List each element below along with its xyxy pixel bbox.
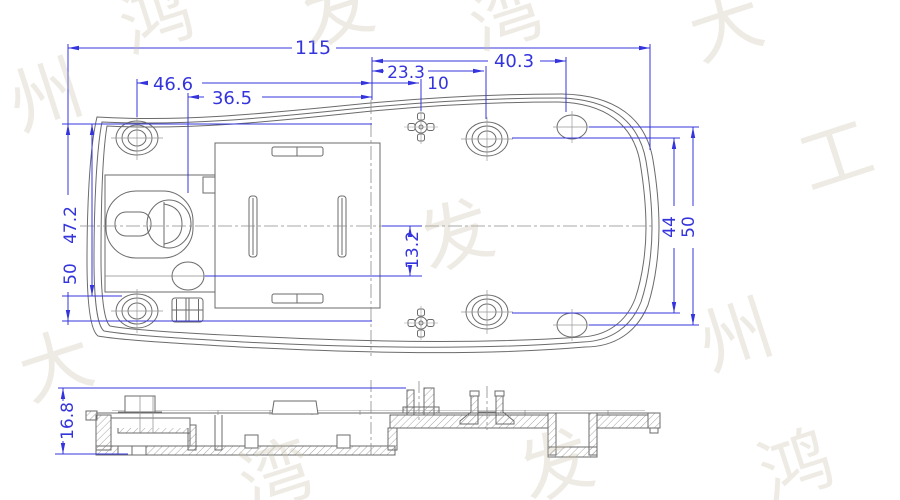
keyhole-feature xyxy=(106,191,193,258)
dim-boss-offset: 10 xyxy=(427,74,449,94)
section-raised-blocks xyxy=(125,396,318,414)
arrowheads xyxy=(61,46,695,454)
top-view xyxy=(80,94,659,356)
dim-center-hole-offset: 23.3 xyxy=(387,63,425,83)
mount-hole-bottom-right xyxy=(461,290,513,334)
dim-keyhole-offset: 36.5 xyxy=(212,88,252,109)
latch-grid xyxy=(172,298,203,322)
dim-left-span: 50 xyxy=(61,263,81,285)
clover-boss-bottom xyxy=(404,306,438,340)
dim-left-inner-span: 47.2 xyxy=(61,206,81,244)
body-outline xyxy=(87,94,659,353)
mount-hole-top-right xyxy=(461,117,513,161)
dimensions: 115 40.3 23.3 10 46.6 36.5 13.2 44 50 47… xyxy=(55,37,699,454)
cad-drawing-canvas: 鸿 发 湾 大 工 州 鸿 发 湾 大 州 发 xyxy=(0,0,900,500)
clover-boss-top xyxy=(404,110,438,144)
dim-right-span: 50 xyxy=(679,216,699,238)
dim-hole-row-span: 44 xyxy=(660,216,680,238)
dim-left-hole-offset: 46.6 xyxy=(153,74,193,95)
left-plate xyxy=(105,175,215,292)
oval-hole-bottom xyxy=(553,309,591,341)
interior-plates xyxy=(105,143,380,308)
cover-notch xyxy=(203,177,215,193)
cover-slots xyxy=(249,147,346,303)
center-cover-plate xyxy=(215,143,380,308)
